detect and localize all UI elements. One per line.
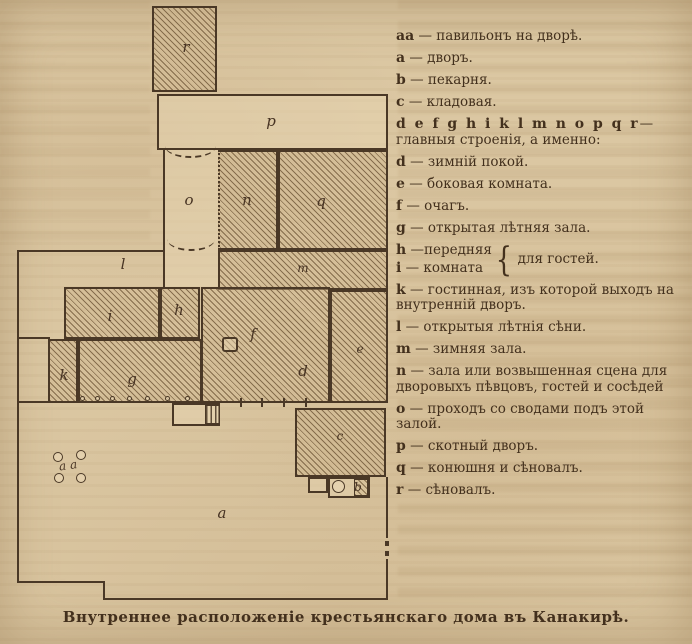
legend: аа — павильонъ на дворѣ. а — дворъ. b — … — [396, 29, 688, 505]
label-p: p — [266, 112, 276, 130]
wall-bottom-left — [17, 581, 105, 583]
label-f: f — [250, 325, 256, 343]
wall-nook — [17, 337, 50, 339]
legend-entry: аа — павильонъ на дворѣ. — [396, 29, 688, 45]
room-winter-chamber-d — [201, 287, 330, 403]
wall-l-top — [17, 250, 165, 252]
legend-entry: n — зала или возвышенная сцена для дворо… — [396, 364, 688, 395]
legend-entry: а — дворъ. — [396, 51, 688, 67]
corridor-summer-l — [18, 252, 218, 287]
legend-entry: q — конюшня и сѣновалъ. — [396, 461, 688, 477]
courtyard-wall-bottom — [103, 598, 388, 600]
label-b: b — [354, 480, 362, 494]
legend-entry: o — проходъ со сводами подъ этой залой. — [396, 402, 688, 433]
pavilion-column — [76, 473, 86, 483]
legend-entry: c — кладовая. — [396, 95, 688, 111]
door-tick — [240, 398, 242, 407]
legend-entry: f — очагъ. — [396, 199, 688, 215]
room-summer-hall-g — [78, 339, 202, 403]
legend-entry: b — пекарня. — [396, 73, 688, 89]
legend-entry: l — открытыя лѣтнія сѣни. — [396, 320, 688, 336]
legend-entry-hi-brace: h —передняя i — комната { для гостей. — [396, 243, 688, 277]
legend-entry: m — зимняя зала. — [396, 342, 688, 358]
gate-post — [385, 551, 389, 556]
scanned-book-page: r p o n q m l i h k g f d e c b a aa аа … — [0, 0, 692, 644]
label-h: h — [174, 301, 184, 319]
legend-entry: k — гостинная, изъ которой выходъ на вну… — [396, 283, 688, 314]
room-stable-q — [278, 150, 388, 250]
print-showthrough — [0, 0, 150, 250]
legend-entry: r — сѣновалъ. — [396, 483, 688, 499]
label-r: r — [182, 38, 189, 56]
legend-entry: p — скотный дворъ. — [396, 439, 688, 455]
brace-shared-text: для гостей. — [518, 252, 599, 268]
label-q: q — [316, 192, 326, 210]
door-tick — [283, 398, 285, 407]
oven-circle — [332, 480, 345, 493]
courtyard-wall-left — [17, 250, 19, 583]
figure-caption: Внутреннее расположеніе крестьянскаго до… — [0, 608, 692, 626]
label-l: l — [121, 255, 126, 273]
legend-entry: e — боковая комната. — [396, 177, 688, 193]
steps — [205, 405, 220, 424]
door-tick — [261, 398, 263, 407]
legend-entry: g — открытая лѣтняя зала. — [396, 221, 688, 237]
label-aa: aa — [58, 457, 82, 474]
hearth-f — [222, 337, 238, 352]
legend-entry: d — зимній покой. — [396, 155, 688, 171]
label-d: d — [298, 362, 308, 380]
gate-post — [385, 541, 389, 546]
label-c: c — [337, 429, 344, 443]
label-o: o — [184, 191, 193, 209]
legend-entry: d e f g h i k l m n o p q r—главныя стро… — [396, 117, 688, 148]
label-m: m — [297, 261, 308, 275]
storeroom-step — [308, 477, 328, 493]
label-n: n — [242, 191, 252, 209]
label-e: e — [356, 342, 363, 356]
door-tick — [305, 398, 307, 407]
pavilion-column — [54, 473, 64, 483]
label-i: i — [108, 307, 113, 325]
courtyard-wall-right — [386, 559, 388, 600]
label-g: g — [127, 370, 137, 388]
label-a: a — [218, 504, 227, 522]
wall-south — [17, 401, 203, 403]
brace-glyph: { — [496, 243, 512, 277]
courtyard-wall-right — [386, 477, 388, 538]
label-k: k — [59, 366, 68, 384]
